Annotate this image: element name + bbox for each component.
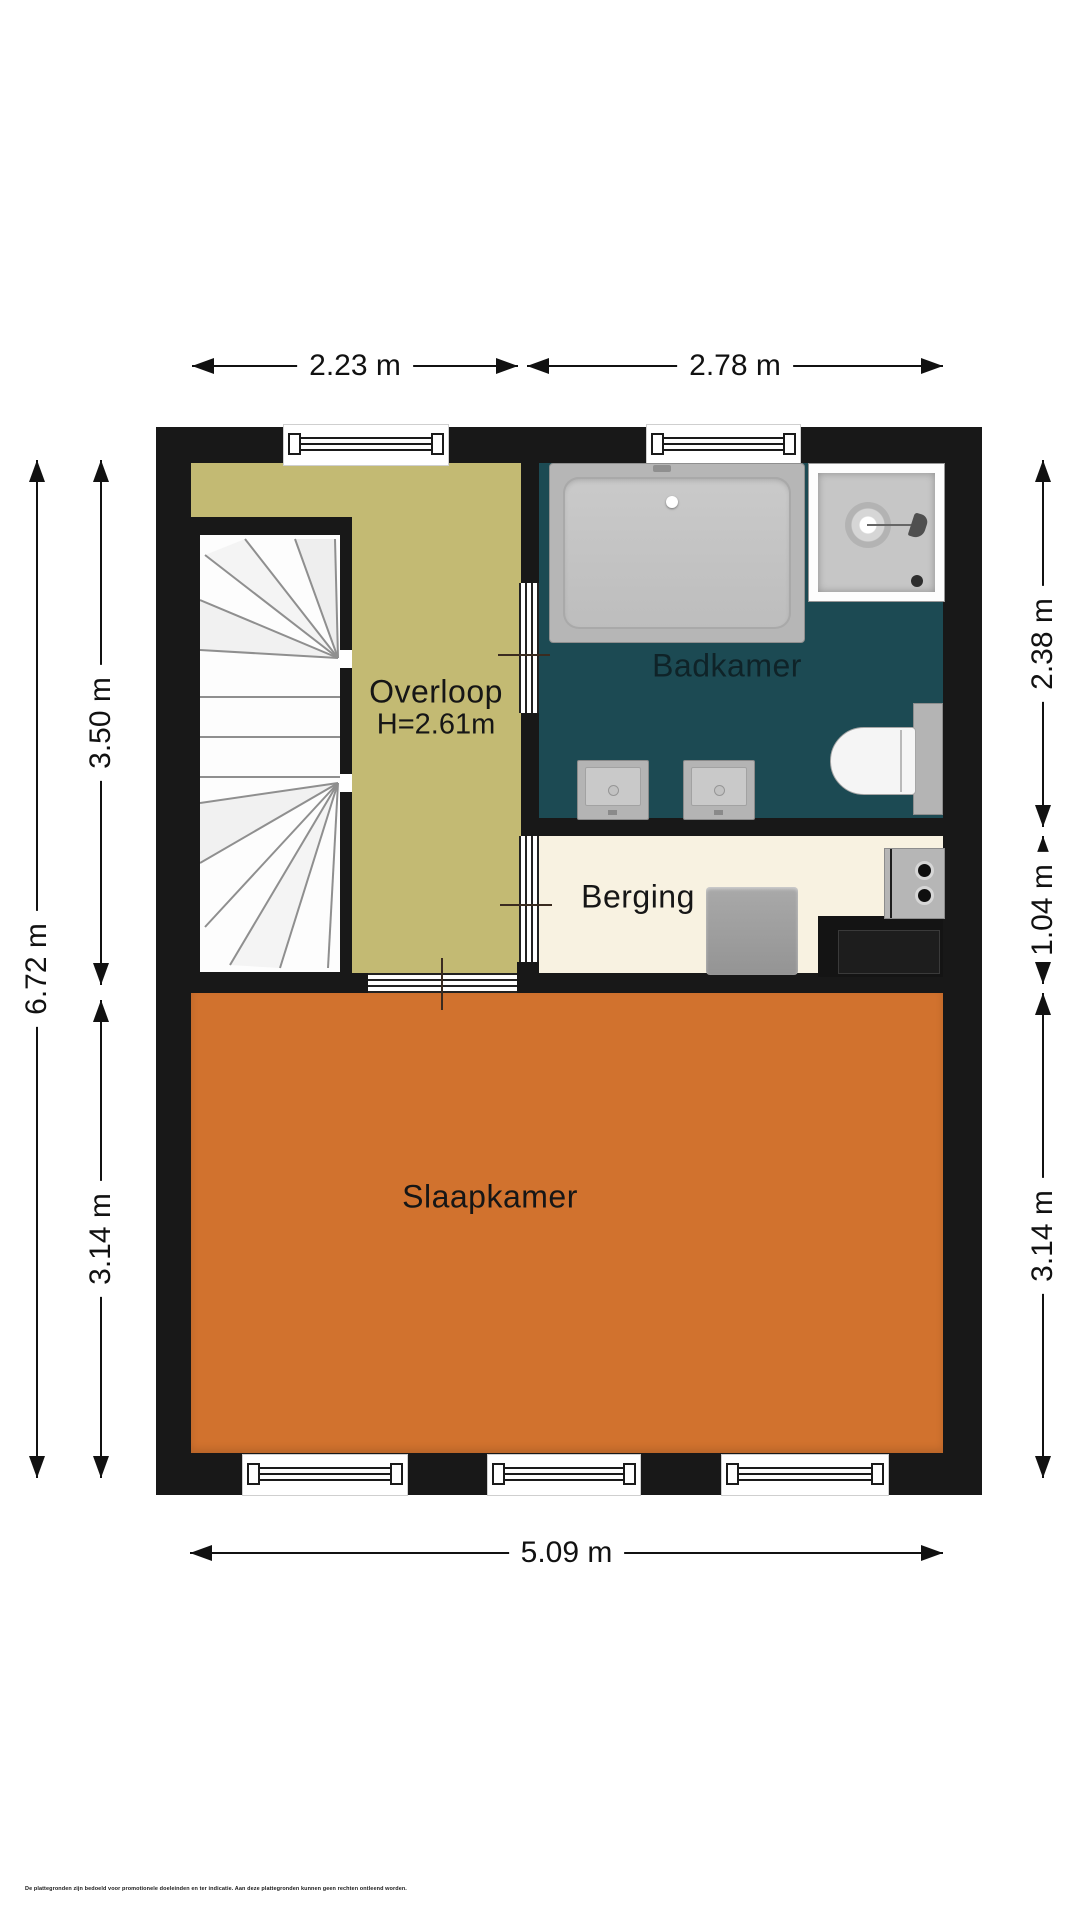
- wall-left: [156, 427, 191, 1495]
- dimension-top-left: 2.23 m: [192, 365, 518, 367]
- duct-inner: [838, 930, 940, 974]
- staircase: [200, 535, 340, 972]
- dimension-right-lower: 3.14 m: [1042, 993, 1044, 1478]
- wall-right: [943, 427, 982, 1495]
- door-overloop-berging: [519, 836, 539, 962]
- window: [284, 425, 448, 465]
- duct-box: [818, 916, 943, 977]
- wall-badkamer-berging: [521, 818, 943, 836]
- window: [722, 1455, 888, 1495]
- stair-landing-notch: [340, 650, 352, 668]
- toilet-cistern: [913, 703, 943, 815]
- room-label-overloop: Overloop: [369, 674, 503, 711]
- footer-disclaimer: De plattegronden zijn bedoeld voor promo…: [25, 1886, 407, 1892]
- boiler-icon: [706, 887, 798, 975]
- window-glazing: [259, 1467, 391, 1481]
- heater-unit-line: [890, 849, 892, 918]
- window-cap: [783, 433, 796, 455]
- heater-unit-icon: [884, 848, 945, 919]
- dimension-label: 3.14 m: [1026, 1178, 1060, 1294]
- washbasin-tap: [714, 810, 723, 815]
- dimension-label: 6.72 m: [20, 911, 54, 1027]
- bathtub-tap: [653, 465, 671, 472]
- shower-icon: [808, 463, 945, 602]
- heater-unit-knob: [915, 886, 934, 905]
- dimension-left-total: 6.72 m: [36, 460, 38, 1478]
- window-glazing: [663, 437, 784, 451]
- window-glazing: [300, 437, 432, 451]
- dimension-bottom-total: 5.09 m: [190, 1552, 943, 1554]
- bathtub-icon: [549, 463, 805, 643]
- door-tick: [500, 904, 552, 906]
- stair-landing-notch: [340, 774, 352, 792]
- dimension-label: 2.78 m: [677, 349, 793, 383]
- dimension-label: 2.23 m: [297, 349, 413, 383]
- dimension-left-lower: 3.14 m: [100, 1000, 102, 1478]
- dimension-left-upper: 3.50 m: [100, 460, 102, 985]
- dimension-label: 3.50 m: [84, 665, 118, 781]
- room-label-slaapkamer: Slaapkamer: [402, 1179, 578, 1216]
- wall-overloop-badkamer-upper: [521, 463, 539, 583]
- washbasin-icon: [683, 760, 755, 820]
- window-cap: [871, 1463, 884, 1485]
- door-tick: [498, 654, 550, 656]
- dimension-label: 2.38 m: [1026, 586, 1060, 702]
- heater-unit-knob: [915, 861, 934, 880]
- window: [488, 1455, 640, 1495]
- wall-slaapkamer-top-left: [156, 973, 368, 993]
- room-label-badkamer: Badkamer: [652, 648, 802, 685]
- toilet-icon: [830, 727, 916, 795]
- window-glazing: [504, 1467, 624, 1481]
- window: [647, 425, 800, 465]
- washbasin-tap: [608, 810, 617, 815]
- room-slaapkamer-floor: [191, 993, 943, 1453]
- dimension-label: 1.04 m: [1026, 852, 1060, 968]
- wall-top: [156, 427, 982, 463]
- floorplan-page: Overloop H=2.61m Badkamer Berging Slaapk…: [0, 0, 1080, 1920]
- dimension-label: 5.09 m: [509, 1536, 625, 1570]
- dimension-top-right: 2.78 m: [527, 365, 943, 367]
- toilet-seat-line: [900, 730, 902, 792]
- window-cap: [623, 1463, 636, 1485]
- shower-drain: [911, 575, 923, 587]
- door-overloop-badkamer: [519, 583, 539, 713]
- window-glazing: [738, 1467, 872, 1481]
- dimension-right-upper: 2.38 m: [1042, 460, 1044, 827]
- room-height-note: H=2.61m: [377, 709, 495, 742]
- window-cap: [390, 1463, 403, 1485]
- door-tick: [441, 958, 443, 1010]
- washbasin-icon: [577, 760, 649, 820]
- dimension-right-middle: 1.04 m: [1042, 836, 1044, 984]
- dimension-label: 3.14 m: [84, 1181, 118, 1297]
- room-label-berging: Berging: [581, 879, 695, 916]
- window: [243, 1455, 407, 1495]
- window-cap: [431, 433, 444, 455]
- bathtub-drain: [666, 496, 678, 508]
